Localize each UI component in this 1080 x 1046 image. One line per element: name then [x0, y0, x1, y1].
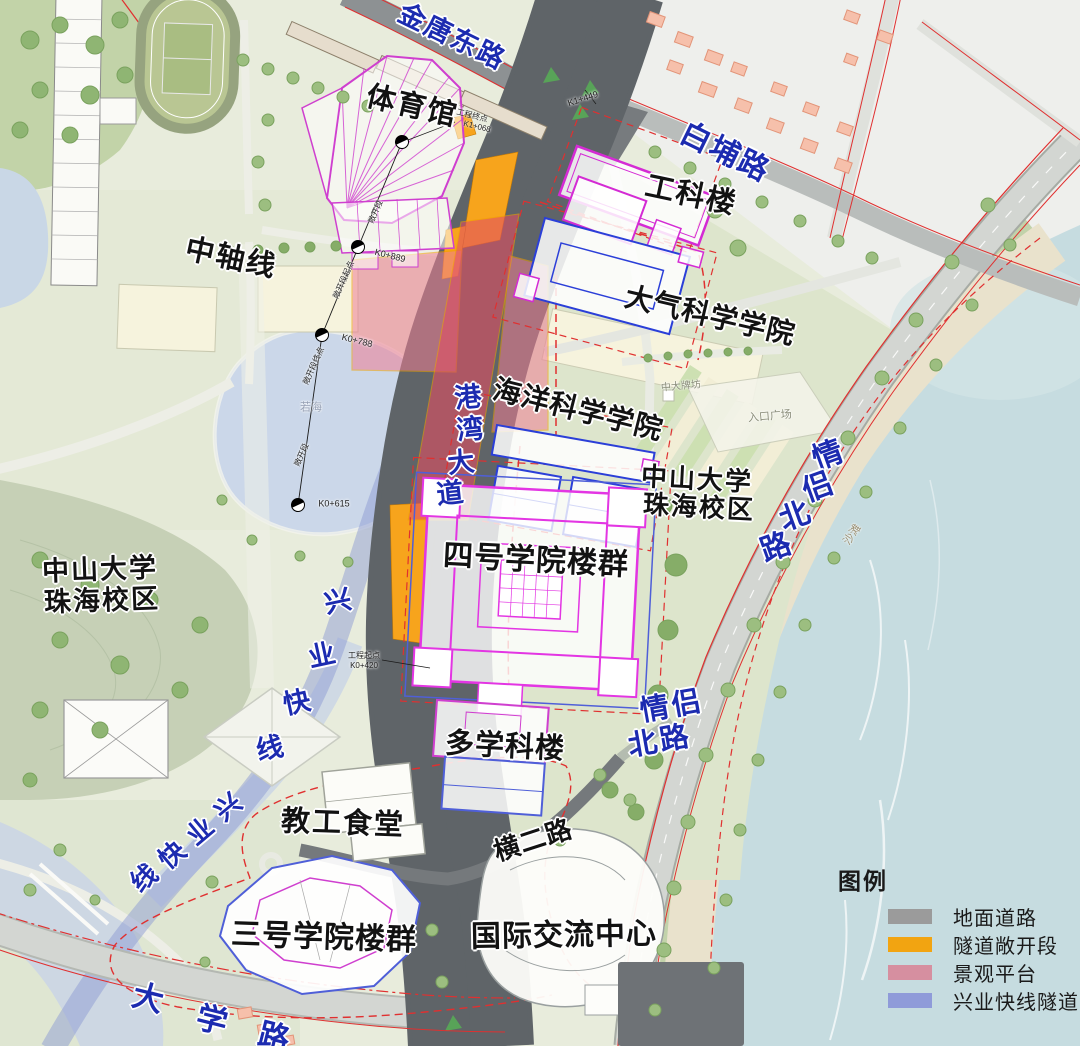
- legend-label-landscape-platform: 景观平台: [953, 958, 1037, 987]
- no4-college-complex: [404, 472, 656, 721]
- legend-swatch-tunnel-open-section: [888, 937, 932, 952]
- legend: 图例 地面道路 隧道敞开段 景观平台 兴业快线隧道: [838, 862, 1079, 1008]
- legend-title: 图例: [838, 862, 1079, 896]
- legend-label-ground-road: 地面道路: [953, 902, 1037, 931]
- multidisciplinary-building: [429, 700, 548, 816]
- legend-item-landscape-platform: 景观平台: [838, 965, 1079, 980]
- legend-label-xingye-express-tunnel: 兴业快线隧道: [953, 986, 1079, 1015]
- legend-item-xingye-express-tunnel: 兴业快线隧道: [838, 993, 1079, 1008]
- campus-plan-map: 金唐东路白埔路情侣北路情侣北路港湾大道大学路兴业快线兴业快线体育馆工科楼大气科学…: [0, 0, 1080, 1046]
- legend-label-tunnel-open-section: 隧道敞开段: [953, 930, 1058, 959]
- stadium: [133, 0, 242, 136]
- legend-item-tunnel-open-section: 隧道敞开段: [838, 937, 1079, 952]
- legend-swatch-landscape-platform: [888, 965, 932, 980]
- legend-swatch-xingye-express-tunnel: [888, 993, 932, 1008]
- pyramid-building: [64, 700, 168, 778]
- legend-swatch-ground-road: [888, 909, 932, 924]
- legend-item-ground-road: 地面道路: [838, 909, 1079, 924]
